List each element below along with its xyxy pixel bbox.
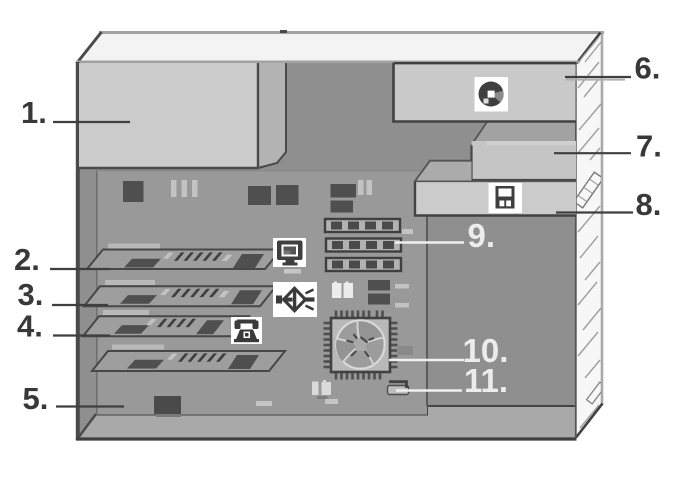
svg-text:8.: 8. <box>636 187 662 222</box>
svg-text:7.: 7. <box>636 129 662 164</box>
svg-text:6.: 6. <box>635 51 661 86</box>
svg-text:11.: 11. <box>464 362 508 399</box>
svg-text:4.: 4. <box>17 309 43 344</box>
svg-text:1.: 1. <box>21 95 47 130</box>
svg-text:9.: 9. <box>468 217 496 254</box>
svg-text:2.: 2. <box>14 242 40 277</box>
svg-text:3.: 3. <box>18 277 44 312</box>
svg-text:5.: 5. <box>23 381 49 416</box>
